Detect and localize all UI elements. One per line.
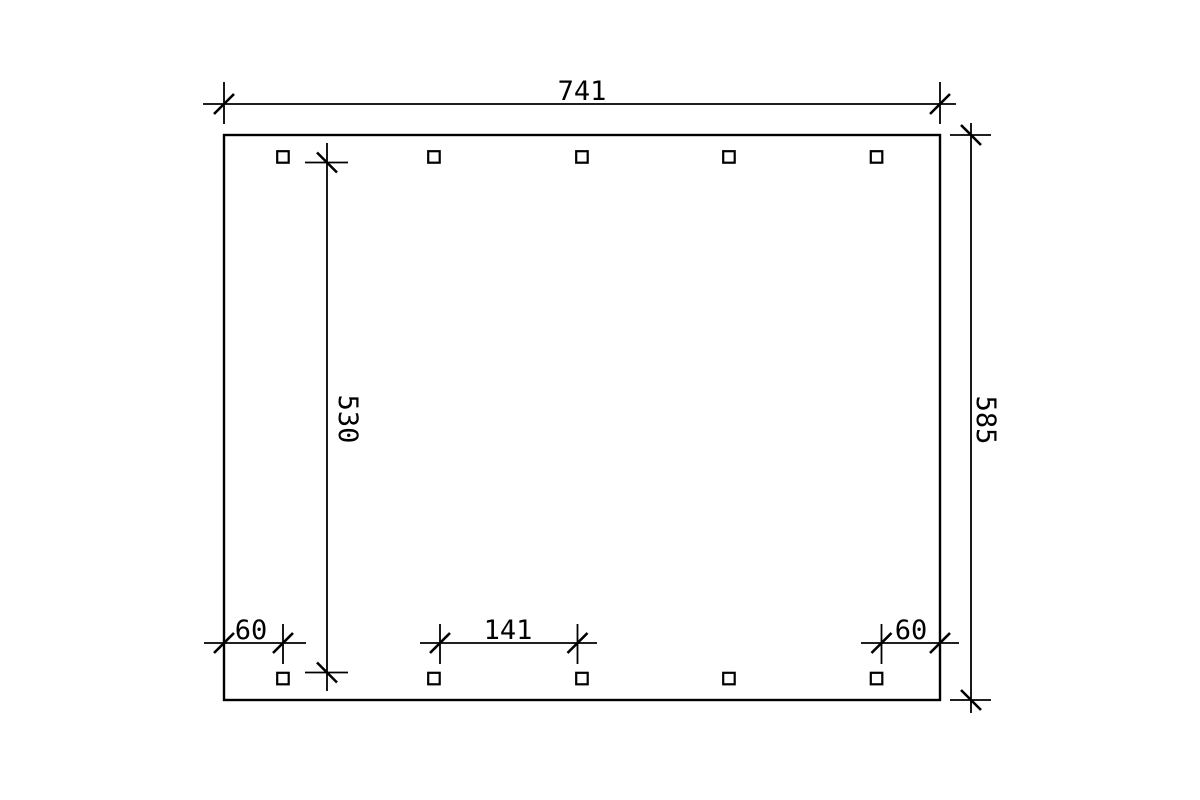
post-bottom-3 (576, 673, 588, 685)
post-top-3 (576, 151, 588, 163)
posts-bottom-row (277, 673, 882, 685)
post-bottom-1 (277, 673, 289, 685)
dim-label-inner-post-depth: 530 (332, 395, 363, 444)
post-bottom-5 (871, 673, 883, 685)
floor-plan-drawing: 741 585 530 60 141 (0, 0, 1200, 800)
post-top-1 (277, 151, 289, 163)
post-top-4 (723, 151, 735, 163)
dimension-overall-depth: 585 (950, 123, 1001, 713)
dimension-overall-width: 741 (203, 76, 956, 124)
post-top-5 (871, 151, 883, 163)
dim-label-post-clear-spacing: 141 (484, 615, 533, 646)
dim-label-overall-width: 741 (558, 76, 607, 107)
carport-outline (224, 135, 940, 700)
post-bottom-2 (428, 673, 440, 685)
dimension-post-clear-spacing: 141 (420, 615, 597, 664)
dim-label-post-offset-right: 60 (895, 615, 928, 646)
dimension-post-offset-right: 60 (861, 615, 959, 664)
post-bottom-4 (723, 673, 735, 685)
dimension-post-offset-left: 60 (204, 615, 306, 664)
post-top-2 (428, 151, 440, 163)
posts-top-row (277, 151, 882, 163)
dimension-inner-post-depth: 530 (305, 143, 363, 691)
dim-label-post-offset-left: 60 (235, 615, 268, 646)
dim-label-overall-depth: 585 (970, 396, 1001, 445)
